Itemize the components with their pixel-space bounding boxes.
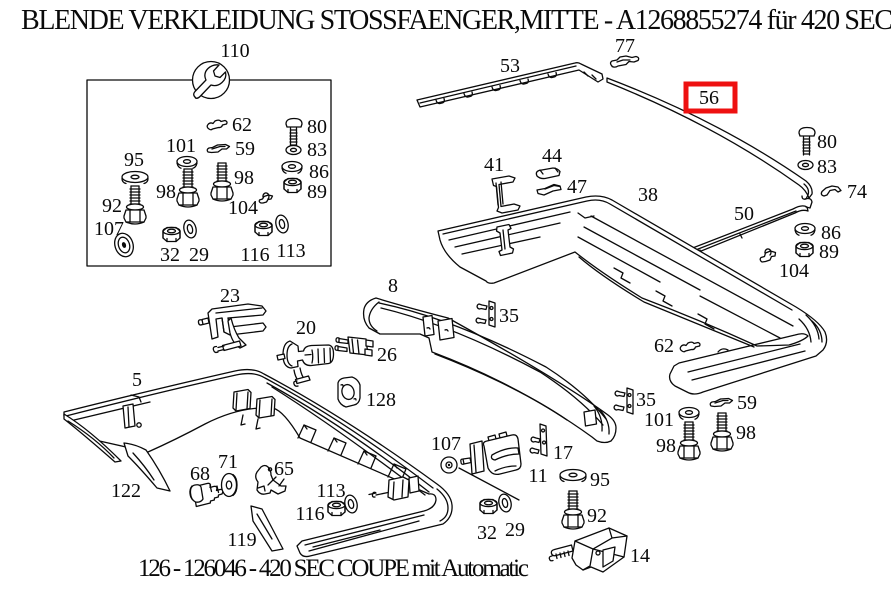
svg-text:14: 14 <box>630 545 650 567</box>
svg-text:29: 29 <box>189 244 209 266</box>
svg-text:126 - 126046 - 420 SEC COUPE m: 126 - 126046 - 420 SEC COUPE mit Automat… <box>138 555 529 582</box>
svg-text:8: 8 <box>388 275 398 297</box>
svg-text:104: 104 <box>228 197 258 219</box>
svg-text:95: 95 <box>590 469 610 491</box>
svg-text:26: 26 <box>377 344 397 366</box>
svg-text:62: 62 <box>654 335 674 357</box>
svg-text:98: 98 <box>736 422 756 444</box>
svg-text:104: 104 <box>779 260 809 282</box>
svg-text:62: 62 <box>232 114 252 136</box>
svg-text:89: 89 <box>819 241 839 263</box>
svg-text:86: 86 <box>309 161 329 183</box>
svg-text:107: 107 <box>94 218 124 240</box>
svg-text:122: 122 <box>111 480 141 502</box>
svg-text:101: 101 <box>644 409 674 431</box>
svg-text:110: 110 <box>220 40 249 62</box>
svg-text:89: 89 <box>307 181 327 203</box>
svg-text:68: 68 <box>190 463 210 485</box>
svg-text:98: 98 <box>656 435 676 457</box>
svg-text:92: 92 <box>587 505 607 527</box>
svg-text:98: 98 <box>156 181 176 203</box>
svg-text:128: 128 <box>366 389 396 411</box>
svg-text:65: 65 <box>274 458 294 480</box>
svg-text:95: 95 <box>124 149 144 171</box>
svg-text:59: 59 <box>737 392 757 414</box>
svg-text:5: 5 <box>132 369 142 391</box>
svg-text:35: 35 <box>499 305 519 327</box>
svg-text:71: 71 <box>218 451 238 473</box>
svg-text:80: 80 <box>307 116 327 138</box>
svg-text:44: 44 <box>542 145 562 167</box>
svg-text:113: 113 <box>276 240 305 262</box>
svg-text:50: 50 <box>734 203 754 225</box>
svg-text:83: 83 <box>817 156 837 178</box>
svg-text:38: 38 <box>638 184 658 206</box>
svg-text:116: 116 <box>295 503 324 525</box>
svg-text:98: 98 <box>234 167 254 189</box>
svg-text:92: 92 <box>102 195 122 217</box>
svg-text:35: 35 <box>636 389 656 411</box>
svg-text:32: 32 <box>160 244 180 266</box>
svg-text:113: 113 <box>316 480 345 502</box>
svg-text:17: 17 <box>553 442 573 464</box>
svg-text:23: 23 <box>220 285 240 307</box>
svg-text:59: 59 <box>235 138 255 160</box>
svg-text:29: 29 <box>505 519 525 541</box>
svg-text:101: 101 <box>166 135 196 157</box>
svg-text:80: 80 <box>817 131 837 153</box>
svg-text:56: 56 <box>699 87 719 109</box>
svg-text:107: 107 <box>431 433 461 455</box>
svg-text:41: 41 <box>484 154 504 176</box>
svg-text:BLENDE VERKLEIDUNG STOSSFAENGE: BLENDE VERKLEIDUNG STOSSFAENGER,MITTE - … <box>21 5 891 36</box>
svg-text:77: 77 <box>615 35 635 57</box>
svg-text:47: 47 <box>567 176 587 198</box>
svg-text:53: 53 <box>500 55 520 77</box>
svg-text:11: 11 <box>528 465 547 487</box>
svg-text:119: 119 <box>227 529 256 551</box>
svg-text:116: 116 <box>240 244 269 266</box>
svg-text:83: 83 <box>307 139 327 161</box>
svg-text:74: 74 <box>847 181 867 203</box>
svg-text:32: 32 <box>477 522 497 544</box>
svg-text:20: 20 <box>296 317 316 339</box>
